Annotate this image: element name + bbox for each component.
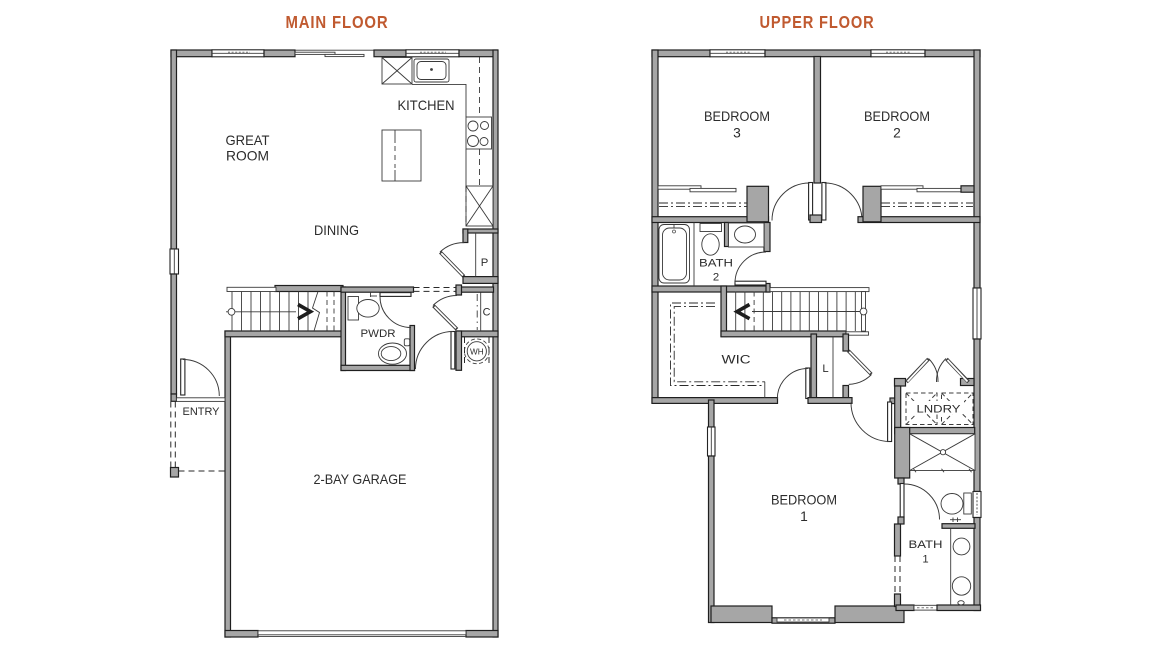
svg-text:3: 3 [733,126,741,141]
svg-text:L: L [822,363,828,375]
svg-text:1: 1 [800,509,808,524]
svg-text:BATH: BATH [909,539,943,551]
svg-text:2: 2 [893,126,901,141]
svg-text:LNDRY: LNDRY [917,404,962,416]
svg-text:UPPER FLOOR: UPPER FLOOR [760,12,875,32]
svg-text:ROOM: ROOM [226,149,269,164]
svg-text:C: C [483,307,491,319]
svg-text:KITCHEN: KITCHEN [398,98,455,113]
svg-text:ENTRY: ENTRY [183,406,220,418]
svg-text:1: 1 [922,554,928,566]
svg-text:WH: WH [470,348,484,357]
svg-text:PWDR: PWDR [361,328,396,340]
svg-text:P: P [481,257,489,269]
svg-text:2: 2 [713,272,719,284]
svg-text:BATH: BATH [699,258,733,270]
svg-text:BEDROOM: BEDROOM [704,109,770,124]
svg-text:BEDROOM: BEDROOM [771,493,837,508]
svg-text:WIC: WIC [722,353,751,367]
svg-text:DINING: DINING [314,223,359,238]
svg-text:MAIN FLOOR: MAIN FLOOR [286,12,389,32]
svg-text:GREAT: GREAT [226,133,271,148]
svg-text:BEDROOM: BEDROOM [864,109,930,124]
svg-text:2-BAY GARAGE: 2-BAY GARAGE [314,472,407,487]
